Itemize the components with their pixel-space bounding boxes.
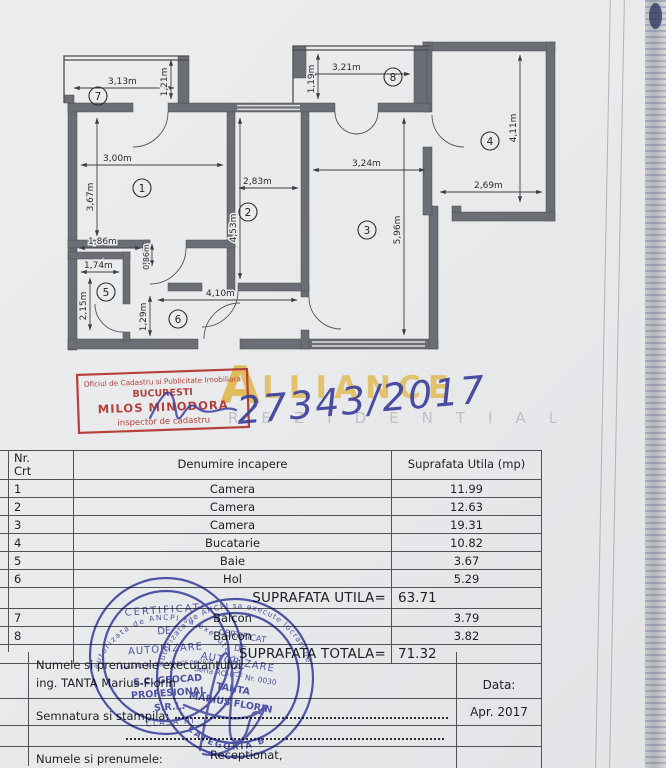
row-name: Camera (74, 516, 392, 533)
room-badge-6: 6 (169, 310, 187, 328)
dim-balcony8-depth: 1,19m (307, 65, 317, 94)
dim-balcony7-width: 3,13m (108, 77, 137, 87)
room-badge-4: 4 (481, 132, 499, 150)
row-area: 19.31 (392, 516, 542, 533)
room-badge-2: 2 (239, 203, 257, 221)
table-row: 4 Bucatarie 10.82 (0, 534, 542, 552)
dim-room5-height: 2,15m (79, 292, 89, 321)
red-stamp-inspector-name: MILOS MINODORA (98, 398, 229, 417)
red-office-stamp: Oficiul de Cadastru si Publicitate Imobi… (77, 369, 249, 433)
row-name: Camera (74, 480, 392, 497)
red-stamp-role: inspector de cadastru (117, 415, 210, 428)
dim-hall-height: 1,29m (139, 303, 149, 332)
blue-stamps-overlay: autorizata de ANCPI sa execute lucrari C… (0, 555, 666, 768)
row-nr: 3 (0, 516, 74, 533)
room-badge-3: 3 (358, 221, 376, 239)
table-row: 1 Camera 11.99 (0, 480, 542, 498)
room-number-6: 6 (175, 314, 182, 326)
table-header-row: Nr. Crt Denumire incapere Suprafata Util… (0, 451, 542, 480)
room-badge-8: 8 (384, 68, 402, 86)
col-header-denumire: Denumire incapere (74, 451, 392, 479)
dim-nook-height: 0,86m (142, 244, 151, 270)
dim-room2-width: 2,83m (243, 177, 272, 187)
tanta-title2: DE (233, 643, 246, 655)
row-name: Camera (74, 498, 392, 515)
row-area: 11.99 (392, 480, 542, 497)
row-nr: 4 (0, 534, 74, 551)
red-stamp-office-line: Oficiul de Cadastru si Publicitate Imobi… (84, 374, 241, 388)
row-nr: 1 (0, 480, 74, 497)
dim-room4-height: 4,11m (509, 114, 519, 143)
photo-edge-dark-mark (649, 3, 662, 29)
dim-room3-height: 5,96m (393, 216, 403, 245)
photo-edge-strip (645, 0, 666, 768)
scanned-cadastral-document: 3,13m 1,21m 3,00m 3,67m 2,83m 4,53m 3,21… (0, 0, 666, 768)
table-row: 3 Camera 19.31 (0, 516, 542, 534)
dim-room4-width: 2,69m (474, 181, 503, 191)
dim-balcony8-width: 3,21m (332, 63, 361, 73)
room-number-8: 8 (390, 72, 397, 84)
room-number-2: 2 (245, 207, 252, 219)
room-badge-5: 5 (97, 283, 115, 301)
row-area: 10.82 (392, 534, 542, 551)
dim-room3-width: 3,24m (352, 159, 381, 169)
room-number-1: 1 (139, 183, 146, 195)
balcony-outlines (64, 46, 430, 103)
table-row: 2 Camera 12.63 (0, 498, 542, 516)
col-header-suprafata: Suprafata Utila (mp) (392, 451, 542, 479)
room-number-5: 5 (103, 287, 110, 299)
room-badge-1: 1 (133, 179, 151, 197)
room-number-4: 4 (487, 136, 494, 148)
dim-nook-width: 1,86m (88, 237, 117, 247)
dim-room2-height: 4,53m (229, 214, 239, 243)
room-badge-7: 7 (89, 87, 107, 105)
row-nr: 2 (0, 498, 74, 515)
floor-plan-drawing: 3,13m 1,21m 3,00m 3,67m 2,83m 4,53m 3,21… (0, 0, 666, 450)
room-number-3: 3 (364, 225, 371, 237)
col-header-nr: Nr. Crt (0, 451, 74, 479)
row-name: Bucatarie (74, 534, 392, 551)
room-number-7: 7 (95, 91, 102, 103)
dim-room1-width: 3,00m (103, 154, 132, 164)
blue-stamp-geocad: autorizata de ANCPI sa execute lucrari C… (0, 555, 243, 734)
dim-balcony7-depth: 1,21m (160, 68, 170, 97)
dim-hall-width: 4,10m (206, 289, 235, 299)
row-area: 12.63 (392, 498, 542, 515)
dim-room5-width: 1,74m (84, 261, 113, 271)
dim-room1-height: 3,67m (86, 183, 96, 212)
